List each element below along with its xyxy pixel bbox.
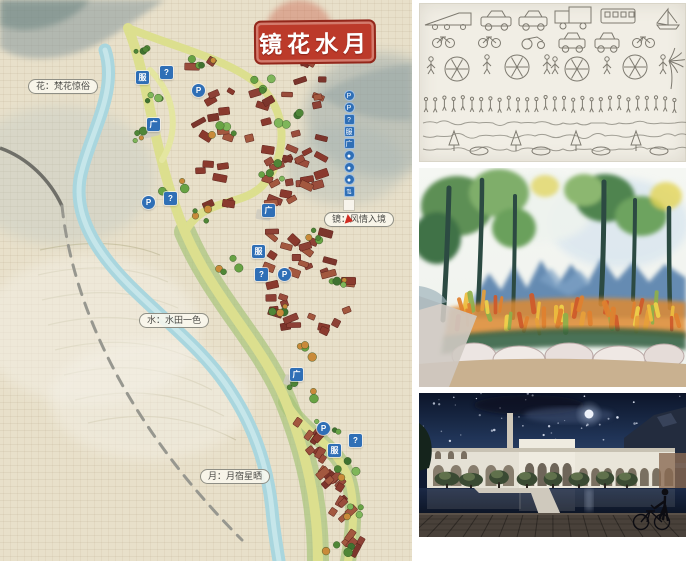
map-marker-plaza: 广 (147, 118, 160, 131)
legend-icon: ● (344, 162, 355, 173)
sketch-sheet-image[interactable] (419, 3, 686, 162)
map-marker-parking: P (192, 84, 205, 97)
title-seal: 镜花水月 (256, 21, 374, 62)
map-marker-parking: P (278, 268, 291, 281)
masterplan-map-image[interactable]: 镜花水月 花：梵花惊俗 镜：风情入境 水：水田一色 月：月宿星晒 服?P广P?广… (0, 0, 412, 561)
map-label-water: 水：水田一色 (139, 313, 209, 328)
map-marker-info: ? (255, 268, 268, 281)
painting-artwork (419, 168, 686, 387)
entry-arrow-icon (344, 214, 354, 226)
legend-icon: ● (344, 174, 355, 185)
night-architecture-image[interactable] (419, 393, 686, 537)
night-render-artwork (419, 393, 686, 537)
map-marker-service: 服 (136, 71, 149, 84)
spire (507, 413, 513, 453)
legend-blank-box (343, 199, 355, 211)
map-marker-plaza: 广 (290, 368, 303, 381)
image-collage: 镜花水月 花：梵花惊俗 镜：风情入境 水：水田一色 月：月宿星晒 服?P广P?广… (0, 0, 686, 567)
map-label-flower: 花：梵花惊俗 (28, 79, 98, 94)
legend-icon: P (344, 102, 355, 113)
legend-icon: ⇅ (344, 186, 355, 197)
map-marker-parking: P (142, 196, 155, 209)
legend-icon: ● (344, 150, 355, 161)
legend-icon: 广 (344, 138, 355, 149)
map-marker-info: ? (164, 192, 177, 205)
legend-icon: ? (344, 114, 355, 125)
moon (585, 410, 594, 419)
map-marker-plaza: 广 (262, 204, 275, 217)
map-legend-strip: PP?服广●●●⇅ (343, 90, 355, 225)
legend-icon: 服 (344, 126, 355, 137)
map-marker-info: ? (160, 66, 173, 79)
map-marker-parking: P (317, 422, 330, 435)
map-label-mirror: 镜：风情入境 (324, 212, 394, 227)
watercolor-painting-image[interactable] (419, 168, 686, 387)
map-marker-info: ? (349, 434, 362, 447)
legend-icon: P (344, 90, 355, 101)
map-marker-service: 服 (328, 444, 341, 457)
map-marker-service: 服 (252, 245, 265, 258)
sketch-doodles (419, 3, 686, 162)
map-label-moon: 月：月宿星晒 (200, 469, 270, 484)
